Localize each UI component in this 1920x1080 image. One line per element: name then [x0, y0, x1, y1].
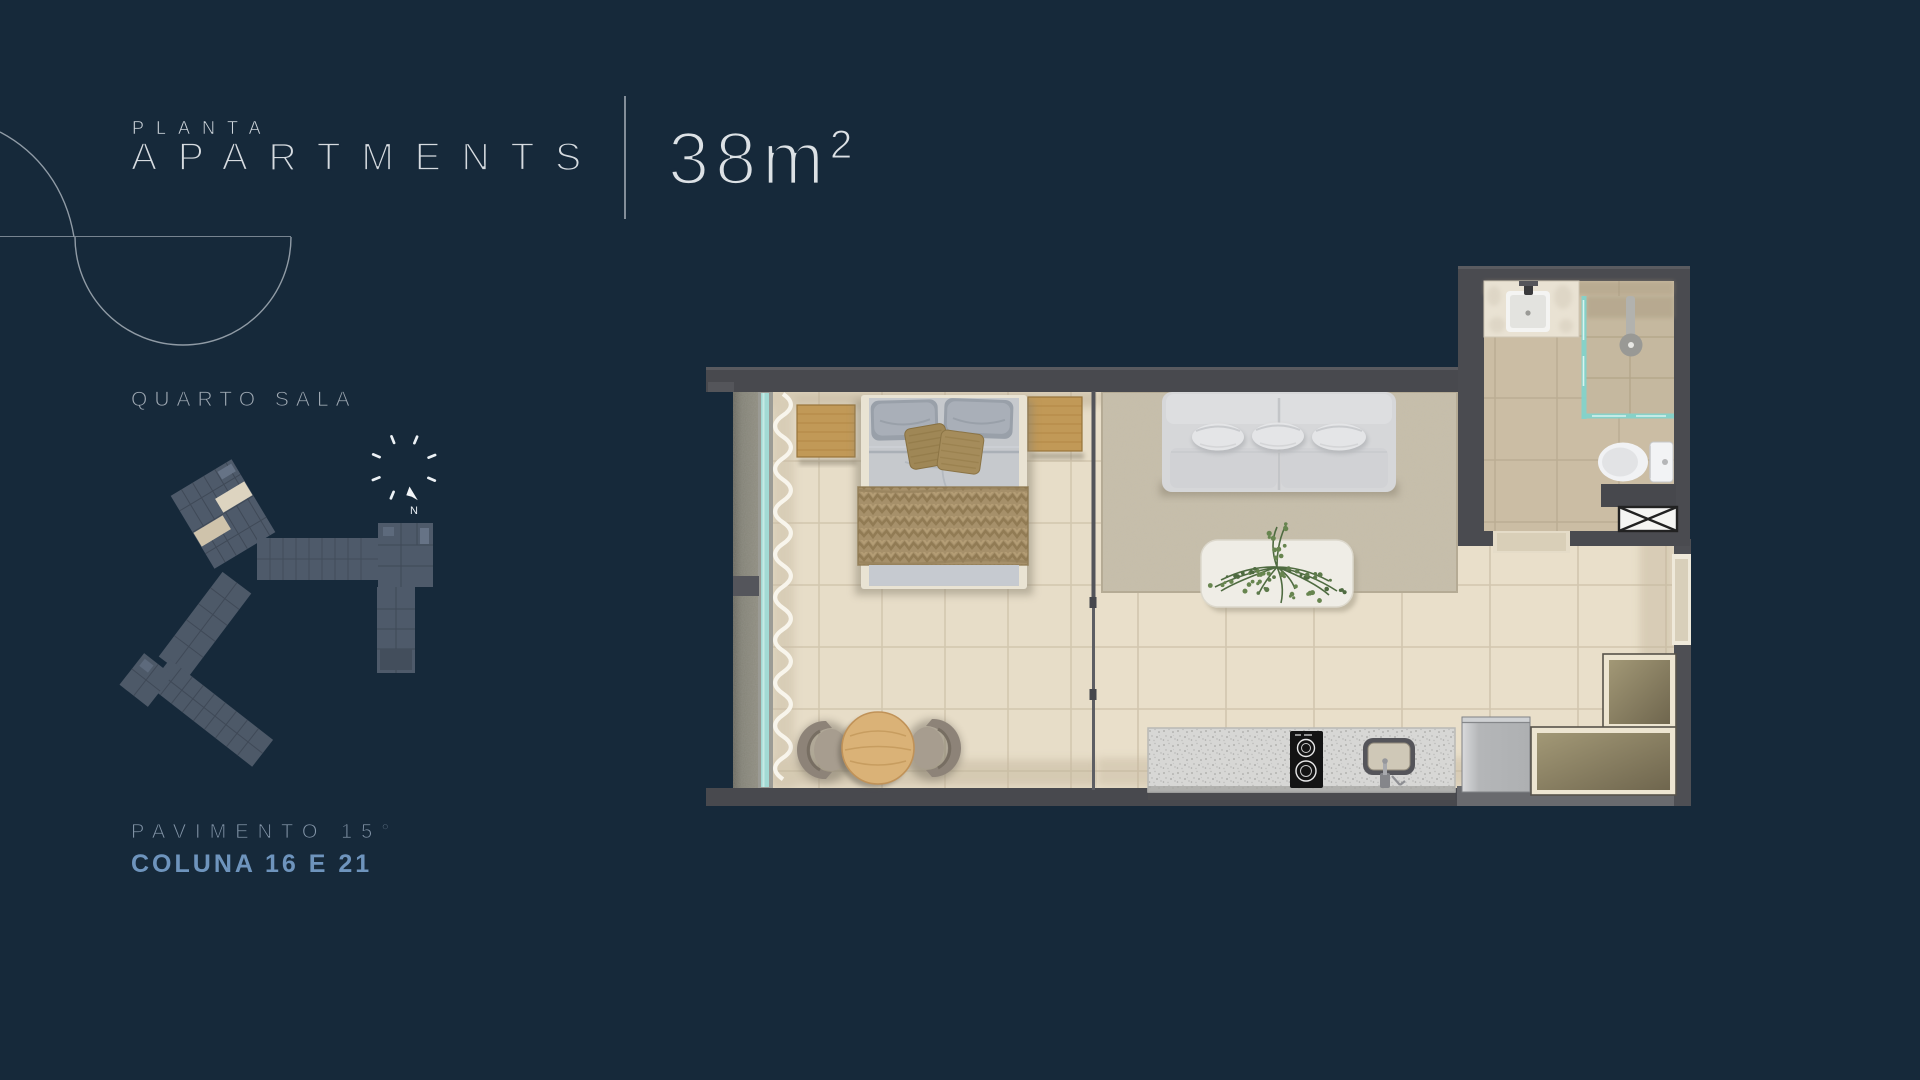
svg-text:N: N	[410, 505, 418, 517]
